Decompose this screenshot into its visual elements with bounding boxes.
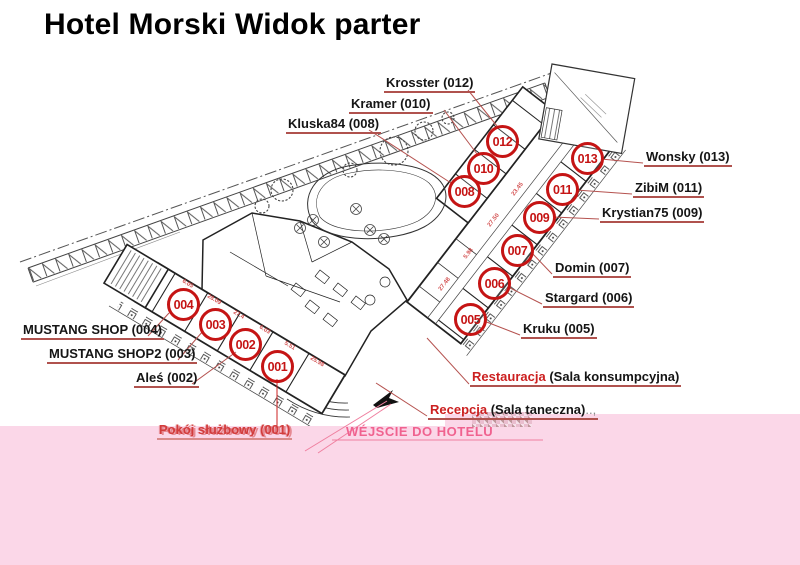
restaurant-label: Restauracja (Sala konsumpcyjna)	[470, 369, 681, 387]
room-number: 003	[206, 318, 226, 332]
room-number: 005	[461, 313, 481, 327]
room-marker-011: 011	[546, 173, 579, 206]
room-label-003: MUSTANG SHOP2 (003)	[47, 346, 197, 364]
room-number: 009	[530, 211, 550, 225]
room-label-001: Pokój służbowy (001)	[157, 422, 292, 440]
room-number: 011	[553, 183, 572, 197]
entrance-arrow-icon	[373, 390, 399, 408]
reception-label-suffix: ..,	[585, 402, 596, 417]
hotel-entrance-label: WÉJSCIE DO HOTELU	[344, 424, 495, 440]
room-number: 013	[578, 152, 598, 166]
room-label-010: Kramer (010)	[349, 96, 433, 114]
room-label-007: Domin (007)	[553, 260, 631, 278]
room-number: 007	[508, 244, 528, 258]
room-number: 012	[493, 135, 513, 149]
room-label-008: Kluska84 (008)	[286, 116, 381, 134]
room-number: 006	[485, 277, 505, 291]
restaurant-label-black: (Sala konsumpcyjna)	[546, 369, 680, 384]
room-number: 008	[455, 185, 475, 199]
room-marker-005: 005	[454, 303, 487, 336]
room-number: 004	[174, 298, 194, 312]
room-number: 010	[474, 162, 494, 176]
reception-label-red: Recepcja	[430, 402, 487, 417]
room-marker-012: 012	[486, 125, 519, 158]
page: { "title": "Hotel Morski Widok parter", …	[0, 0, 800, 565]
room-marker-010: 010	[467, 152, 500, 185]
room-marker-007: 007	[501, 234, 534, 267]
room-label-012: Krosster (012)	[384, 75, 475, 93]
room-marker-003: 003	[199, 308, 232, 341]
reception-label: Recepcja (Sala taneczna)..,	[428, 402, 598, 420]
reception-label-black: (Sala taneczna)	[487, 402, 585, 417]
page-title: Hotel Morski Widok parter	[44, 8, 420, 42]
restaurant-label-red: Restauracja	[472, 369, 546, 384]
room-marker-001: 001	[261, 350, 294, 383]
room-marker-006: 006	[478, 267, 511, 300]
room-label-004: MUSTANG SHOP (004)	[21, 322, 164, 340]
room-number: 002	[236, 338, 256, 352]
room-label-002: Aleś (002)	[134, 370, 199, 388]
room-label-005: Kruku (005)	[521, 321, 597, 339]
annex-block	[539, 64, 635, 153]
room-label-013: Wonsky (013)	[644, 149, 732, 167]
room-number: 001	[268, 360, 288, 374]
room-marker-004: 004	[167, 288, 200, 321]
room-marker-013: 013	[571, 142, 604, 175]
room-label-006: Stargard (006)	[543, 290, 634, 308]
pink-overlay-bottom	[0, 426, 800, 565]
room-label-011: ZibiM (011)	[633, 180, 704, 198]
room-marker-009: 009	[523, 201, 556, 234]
room-marker-002: 002	[229, 328, 262, 361]
room-label-009: Krystian75 (009)	[600, 205, 704, 223]
